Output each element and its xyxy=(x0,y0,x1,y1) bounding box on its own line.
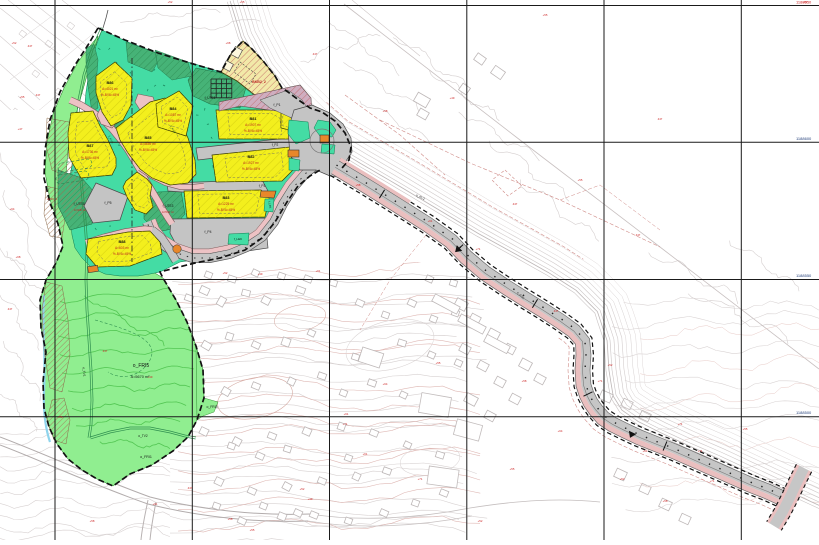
svg-text:+49: +49 xyxy=(308,497,313,501)
svg-text:%-BYA=45%: %-BYA=45% xyxy=(217,208,235,212)
svg-text:B85: B85 xyxy=(145,136,152,140)
svg-text:+71: +71 xyxy=(710,479,715,483)
svg-text:+61: +61 xyxy=(363,452,368,456)
svg-text:+68: +68 xyxy=(16,255,21,259)
svg-text:447: 447 xyxy=(28,44,33,48)
svg-text:B87: B87 xyxy=(87,144,94,148)
svg-text:f_UTE3: f_UTE3 xyxy=(162,204,173,208)
svg-text:+58: +58 xyxy=(663,499,668,503)
svg-text:%-BYA=45%: %-BYA=45% xyxy=(244,129,262,133)
svg-text:B81: B81 xyxy=(250,117,257,121)
svg-text:A=546 m²: A=546 m² xyxy=(162,210,174,214)
svg-text:+71: +71 xyxy=(343,422,348,426)
svg-text:+64: +64 xyxy=(558,429,563,433)
svg-text:%-BYA=45%: %-BYA=45% xyxy=(242,167,260,171)
svg-text:+52: +52 xyxy=(12,41,17,45)
svg-text:o_FRI5: o_FRI5 xyxy=(133,363,150,369)
svg-text:B82: B82 xyxy=(248,155,255,159)
svg-text:o_TV1: o_TV1 xyxy=(82,367,87,377)
svg-text:o_FRI1: o_FRI1 xyxy=(140,455,152,459)
svg-text:+55: +55 xyxy=(543,13,548,17)
svg-text:+55: +55 xyxy=(240,0,245,4)
svg-text:A=603 m²: A=603 m² xyxy=(115,246,129,250)
svg-text:+52: +52 xyxy=(608,363,613,367)
svg-text:+71: +71 xyxy=(678,422,683,426)
svg-text:f_UTE5: f_UTE5 xyxy=(73,202,84,206)
svg-text:+71: +71 xyxy=(418,477,423,481)
svg-text:+49: +49 xyxy=(258,272,263,276)
svg-text:A=4021 m²: A=4021 m² xyxy=(102,87,118,91)
svg-text:+71: +71 xyxy=(698,449,703,453)
svg-text:+61: +61 xyxy=(344,412,349,416)
svg-text:f_P1: f_P1 xyxy=(273,103,280,107)
svg-text:%-BYA=45%: %-BYA=45% xyxy=(113,252,131,256)
svg-text:+61: +61 xyxy=(153,502,158,506)
svg-text:f_P3: f_P3 xyxy=(259,184,266,188)
svg-text:H320_1: H320_1 xyxy=(47,197,58,201)
svg-text:+55: +55 xyxy=(578,178,583,182)
svg-text:+64: +64 xyxy=(383,382,388,386)
svg-text:447: 447 xyxy=(554,309,559,313)
svg-text:f_UTE1: f_UTE1 xyxy=(204,96,215,100)
svg-text:+52: +52 xyxy=(223,271,228,275)
svg-text:+58: +58 xyxy=(383,109,388,113)
svg-text:+71: +71 xyxy=(476,247,481,251)
svg-text:B84: B84 xyxy=(170,107,178,111)
svg-text:+58: +58 xyxy=(58,415,63,419)
svg-text:+58: +58 xyxy=(228,517,233,521)
svg-text:f_LEK: f_LEK xyxy=(234,237,242,241)
svg-text:447: 447 xyxy=(36,93,41,97)
svg-text:+55: +55 xyxy=(436,361,441,365)
svg-text:+49: +49 xyxy=(450,96,455,100)
svg-text:B83: B83 xyxy=(223,196,230,200)
svg-text:+55: +55 xyxy=(743,427,748,431)
svg-text:+71: +71 xyxy=(598,379,603,383)
svg-text:+52: +52 xyxy=(168,0,173,4)
svg-text:+52: +52 xyxy=(478,519,483,523)
svg-text:447: 447 xyxy=(313,52,318,56)
svg-text:A=1225 m²: A=1225 m² xyxy=(218,202,234,206)
svg-text:1188600: 1188600 xyxy=(796,136,812,141)
svg-text:A=1907 m²: A=1907 m² xyxy=(245,123,261,127)
svg-text:+52: +52 xyxy=(620,477,625,481)
svg-text:447: 447 xyxy=(188,486,193,490)
svg-text:+64: +64 xyxy=(643,449,648,453)
svg-text:A=1927 m²: A=1927 m² xyxy=(243,161,259,165)
svg-text:+58: +58 xyxy=(90,519,95,523)
svg-text:+47: +47 xyxy=(18,127,23,131)
svg-text:%-BYA=45%: %-BYA=45% xyxy=(164,119,182,123)
svg-text:B88: B88 xyxy=(119,240,126,244)
svg-text:+55: +55 xyxy=(250,528,255,532)
svg-text:+68: +68 xyxy=(226,41,231,45)
svg-text:+61: +61 xyxy=(803,0,808,4)
svg-text:+49: +49 xyxy=(148,375,153,379)
svg-text:447: 447 xyxy=(636,233,641,237)
svg-text:+58: +58 xyxy=(522,379,527,383)
svg-text:447: 447 xyxy=(103,349,108,353)
svg-text:A=930 m²: A=930 m² xyxy=(74,208,86,212)
svg-text:B86: B86 xyxy=(107,81,114,85)
svg-text:f_P5: f_P5 xyxy=(104,201,111,205)
svg-text:%-BYA=45%: %-BYA=45% xyxy=(101,93,119,97)
svg-text:+55: +55 xyxy=(510,467,515,471)
svg-text:+61: +61 xyxy=(428,219,433,223)
svg-text:o_TV2: o_TV2 xyxy=(138,434,148,438)
svg-text:f_P2: f_P2 xyxy=(272,143,279,147)
svg-text:%-BYA=45%: %-BYA=45% xyxy=(81,156,99,160)
svg-text:A=4659 m²: A=4659 m² xyxy=(140,142,156,146)
svg-text:%-BYA=45%: %-BYA=45% xyxy=(139,148,157,152)
svg-text:447: 447 xyxy=(513,202,518,206)
svg-text:447: 447 xyxy=(658,117,663,121)
svg-text:A=1736 m²: A=1736 m² xyxy=(82,150,98,154)
svg-text:+61: +61 xyxy=(316,269,321,273)
svg-text:+52: +52 xyxy=(300,487,305,491)
svg-text:447: 447 xyxy=(8,307,13,311)
svg-text:1188550: 1188550 xyxy=(796,273,812,278)
svg-text:+55: +55 xyxy=(20,95,25,99)
svg-text:BKB2_2: BKB2_2 xyxy=(252,80,266,84)
svg-text:+58: +58 xyxy=(356,183,361,187)
svg-text:f_P4: f_P4 xyxy=(204,230,211,234)
svg-text:+64: +64 xyxy=(10,207,15,211)
svg-text:A=1087 m²: A=1087 m² xyxy=(165,113,181,117)
svg-text:1188500: 1188500 xyxy=(796,410,812,415)
svg-text:o_FRI3: o_FRI3 xyxy=(206,405,217,409)
